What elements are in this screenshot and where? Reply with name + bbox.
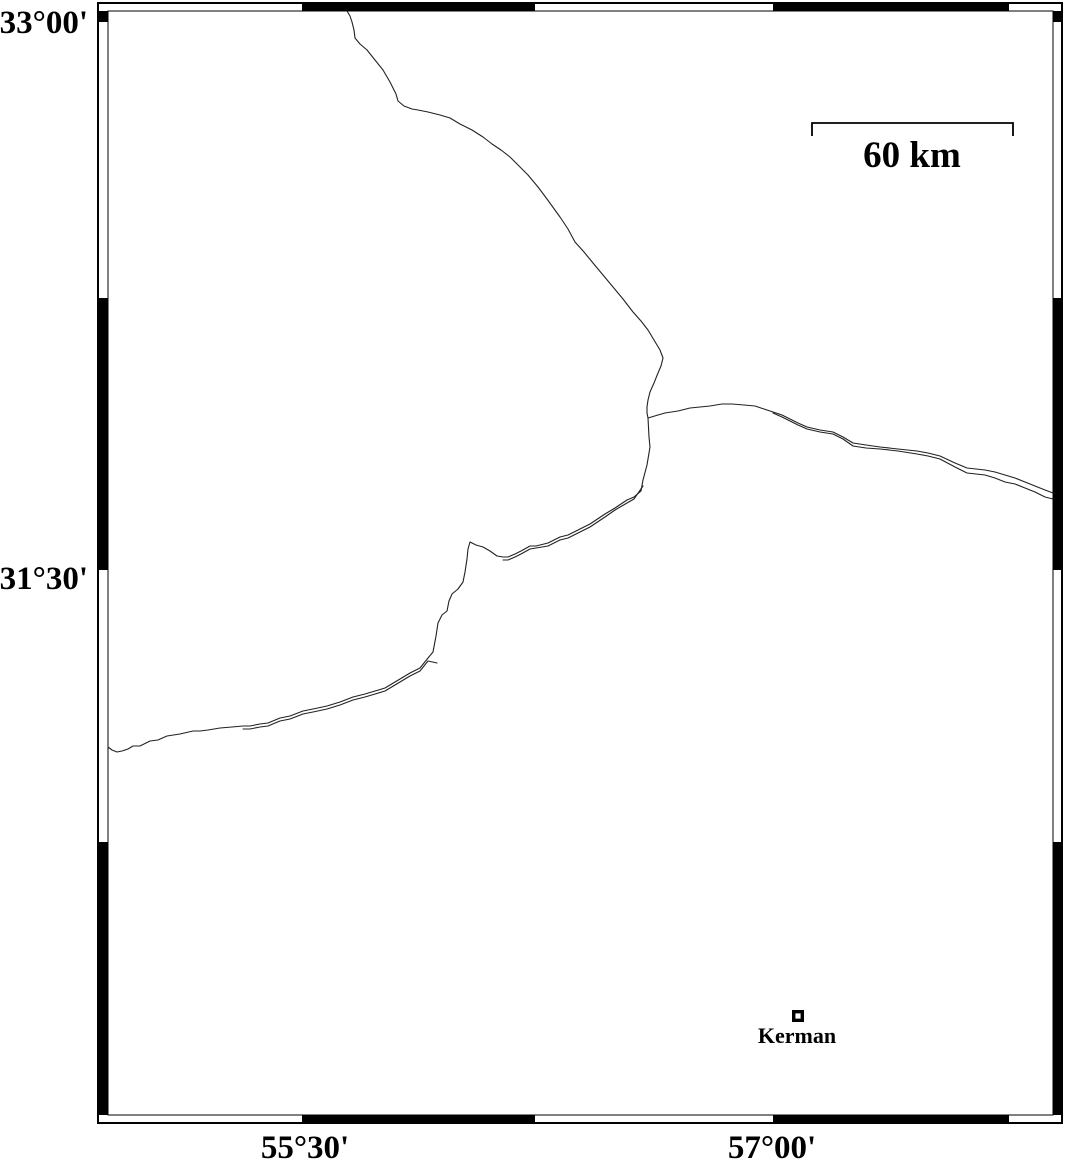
frame-tick-segment-bottom [302, 1115, 535, 1122]
city-marker-kerman [794, 1012, 803, 1021]
frame-tick-segment-top [302, 4, 535, 11]
city-label-kerman: Kerman [758, 1023, 836, 1048]
frame-tick-segment-right [1053, 11, 1061, 22]
map-figure: 33°00'31°30'55°30'57°00'60 kmKerman [0, 0, 1066, 1163]
frame-tick-segment-right [1053, 842, 1061, 1115]
frame-tick-segment-top [773, 4, 1009, 11]
left-axis-label-1: 31°30' [0, 561, 88, 597]
bottom-axis-label-0: 55°30' [261, 1130, 349, 1163]
frame-tick-segment-bottom [773, 1115, 1009, 1122]
scale-bar-label: 60 km [863, 135, 961, 176]
frame-tick-segment-left [99, 842, 108, 1115]
map-canvas: 33°00'31°30'55°30'57°00'60 kmKerman [0, 0, 1066, 1163]
left-axis-label-0: 33°00' [0, 5, 88, 41]
frame-tick-segment-left [99, 298, 108, 570]
bottom-axis-label-1: 57°00' [728, 1130, 816, 1163]
frame-tick-segment-left [99, 11, 108, 22]
frame-tick-segment-right [1053, 298, 1061, 570]
